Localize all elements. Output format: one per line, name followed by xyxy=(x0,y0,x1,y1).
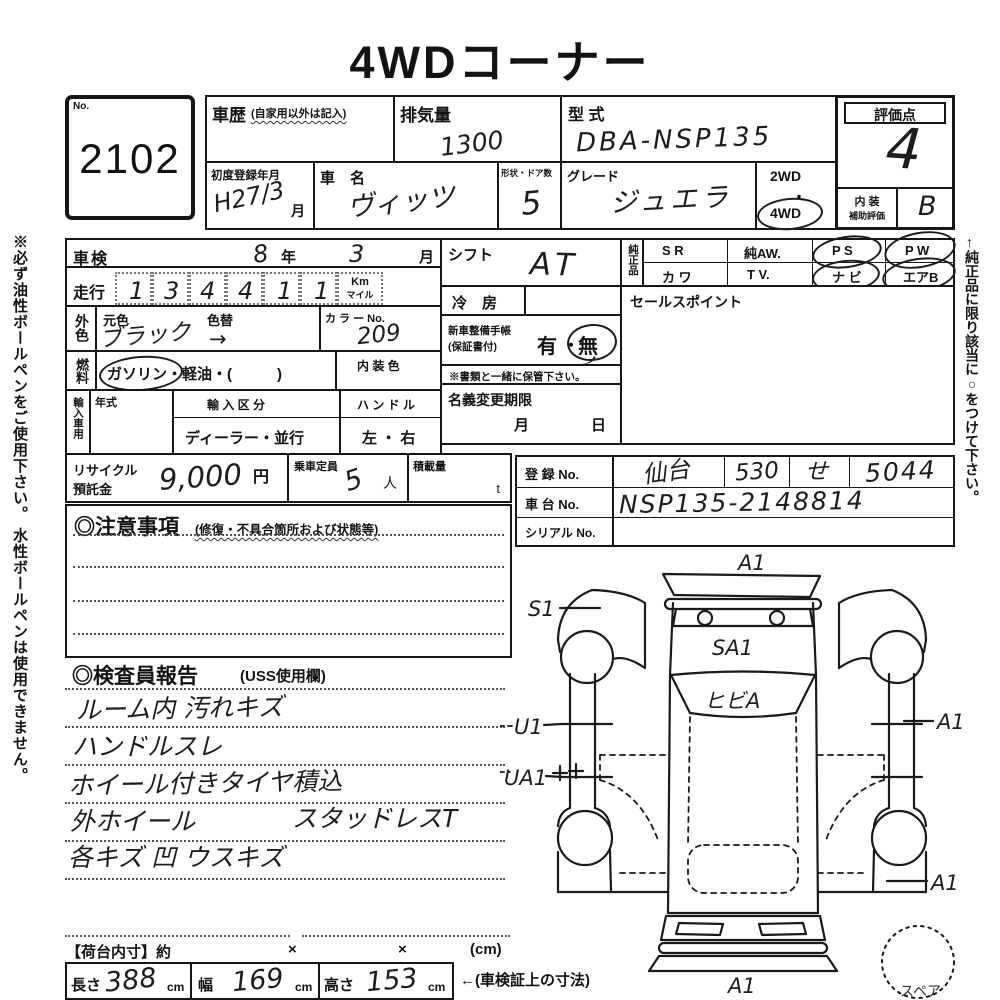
first-registration-value: H27/3 xyxy=(211,178,286,216)
interior-score-value: B xyxy=(918,193,937,220)
damage-mark-hood: SA1 xyxy=(712,636,753,660)
transfer-day: 日 xyxy=(591,414,606,435)
inspector-note: ハンドルスレ xyxy=(72,734,222,759)
car-history-label: 車歴 xyxy=(212,101,246,126)
reg-kana-value: せ xyxy=(805,461,828,484)
doors-value: 5 xyxy=(520,186,543,220)
model-code-value: DBA-NSP135 xyxy=(576,124,773,157)
left-fender xyxy=(558,590,645,668)
recycle-value: 9,000 xyxy=(158,460,243,495)
sales-point-box: セールスポイント xyxy=(620,285,955,445)
width-box: 幅 169 cm xyxy=(190,962,320,1000)
mileage-digit: 3 xyxy=(164,279,179,303)
car-name-value: ヴィッツ xyxy=(346,183,456,221)
damage-mark-top: A1 xyxy=(736,551,766,575)
load-label: 積載量 xyxy=(413,458,446,474)
length-value: 388 xyxy=(104,964,158,996)
rear-bumper-strip xyxy=(659,943,827,953)
damage-mark-fender: S1 xyxy=(528,597,555,621)
doors-box: 形状・ドア数 5 xyxy=(497,161,562,230)
capacity-unit: 人 xyxy=(383,473,397,493)
service-book-label: 新車整備手帳 (保証書付) xyxy=(448,324,511,356)
color-change-arrow: → xyxy=(209,329,227,350)
ac-label: 冷 房 xyxy=(452,292,497,313)
displacement-box: 排気量 1300 xyxy=(393,95,562,163)
front-bumper-strip xyxy=(665,599,821,609)
right-rear-wheel xyxy=(872,811,926,865)
right-front-wheel xyxy=(871,631,923,683)
first-registration-box: 初度登録年月 H27/3 月 xyxy=(205,161,315,230)
car-history-box: 車歴 (自家用以外は記入) xyxy=(205,95,395,163)
import-year-label: 年式 xyxy=(95,394,117,410)
height-value: 153 xyxy=(365,965,419,996)
import-handle-label: ハ ン ド ル xyxy=(357,396,415,413)
left-margin-note: ※必ず油性ボールペンをご使用下さい。 水性ボールペンは使用できません。 xyxy=(9,234,30,786)
shaken-month-unit: 月 xyxy=(419,246,434,267)
capacity-value: 5 xyxy=(341,465,366,496)
taillight-right xyxy=(759,923,806,935)
mileage-digit: 4 xyxy=(200,279,215,303)
mileage-digit: 1 xyxy=(314,279,329,303)
capacity-label: 乗車定員 xyxy=(294,458,338,474)
cowl-dot-right xyxy=(770,611,784,625)
body-side-right xyxy=(813,603,818,913)
reg-number-value: 5044 xyxy=(864,457,937,486)
front-bumper xyxy=(663,574,820,597)
first-registration-month: 月 xyxy=(291,201,305,221)
width-value: 169 xyxy=(231,965,285,996)
score-box: 評価点 4 内 装 補助評価 B xyxy=(835,95,955,230)
doors-label: 形状・ドア数 xyxy=(501,167,552,179)
base-color-value: ブラック xyxy=(98,321,192,352)
recycle-row: リサイクル 預託金 9,000 円 乗車定員 5 人 積載量 t xyxy=(65,453,512,503)
damage-mark-bottom: A1 xyxy=(726,974,756,998)
damage-mark-rear-door: UA1 xyxy=(504,766,547,790)
shaken-year-value: 8 xyxy=(251,241,269,267)
inspector-note: 外ホイール xyxy=(70,809,195,834)
import-handle-value: 左 ・ 右 xyxy=(362,427,415,448)
page-title: 4WDコーナー xyxy=(0,26,1000,91)
rear-bumper xyxy=(649,956,837,971)
mileage-label: 走行 xyxy=(73,279,105,303)
genuine-side-label: 純正品 xyxy=(626,244,641,276)
recycle-unit: 円 xyxy=(253,463,269,487)
mileage-unit-mile: マイル xyxy=(339,288,381,301)
import-side-label: 輸入車用 xyxy=(71,397,86,439)
shift-box: シフト AT xyxy=(440,238,622,287)
auction-sheet: 4WDコーナー ※必ず油性ボールペンをご使用下さい。 水性ボールペンは使用できま… xyxy=(0,0,1000,1000)
ac-box: 冷 房 xyxy=(440,285,622,316)
left-rear-wheel xyxy=(558,811,612,865)
serial-no-label: シリアル No. xyxy=(525,524,596,541)
car-name-label: 車 名 xyxy=(320,167,365,188)
inspector-title: ◎検査員報告 xyxy=(72,660,198,690)
genuine-aw: 純AW. xyxy=(744,243,781,262)
height-label: 高さ xyxy=(324,974,354,995)
import-box: 輸入車用 年式 輸 入 区 分 ディーラー・並行 ハ ン ド ル 左 ・ 右 xyxy=(65,389,442,456)
taillight-panel xyxy=(661,916,825,940)
displacement-label: 排気量 xyxy=(400,101,451,126)
import-division-value: ディーラー・並行 xyxy=(185,427,304,448)
genuine-tv: T V. xyxy=(747,267,770,282)
service-book-yes: 有 xyxy=(537,330,557,359)
chassis-value: NSP135-2148814 xyxy=(619,488,865,517)
import-division-label: 輸 入 区 分 xyxy=(207,396,265,413)
cargo-dim-label: 【荷台内寸】約 xyxy=(66,941,171,962)
shaken-month-value: 3 xyxy=(349,242,364,266)
genuine-kawa: カ ワ xyxy=(662,267,692,286)
fuel-side-label: 燃料 xyxy=(72,358,91,384)
spare-label: スペア xyxy=(900,983,941,999)
height-box: 高さ 153 cm xyxy=(318,962,454,1000)
interior-color-label: 内 装 色 xyxy=(357,357,400,374)
shift-value: AT xyxy=(529,249,580,282)
inspector-note: スタッドレスT xyxy=(292,806,457,831)
displacement-value: 1300 xyxy=(439,127,505,160)
lot-number-box: No. 2102 xyxy=(65,95,195,220)
damage-mark-front-door: U1 xyxy=(514,715,543,739)
inspector-subtitle: (USS使用欄) xyxy=(240,665,326,686)
keep-note: ※書類と一緒に保管下さい。 xyxy=(449,369,586,384)
color-no-value: 209 xyxy=(356,322,402,349)
transfer-month: 月 xyxy=(514,414,529,435)
width-label: 幅 xyxy=(198,974,213,995)
drive-2wd: 2WD xyxy=(770,168,801,184)
caution-title: ◎注意事項 xyxy=(74,511,179,541)
left-front-wheel xyxy=(561,631,613,683)
car-damage-diagram: A1 S1 SA1 ヒビA U1 UA1 A1 A1 A1 スペア xyxy=(500,540,970,1000)
shaken-year-unit: 年 xyxy=(281,246,296,267)
interior-score-label: 内 装 xyxy=(838,193,896,209)
model-code-label: 型 式 xyxy=(568,101,604,125)
right-margin-note: ←純正品に限り該当に○をつけて下さい。 xyxy=(962,236,982,566)
color-row: 外色 元色 色替 ブラック → カ ラ ー No. 209 xyxy=(65,305,442,353)
recycle-label: リサイクル 預託金 xyxy=(73,460,137,498)
lot-number-label: No. xyxy=(73,101,89,112)
keep-note-box: ※書類と一緒に保管下さい。 xyxy=(440,364,622,385)
color-side-label: 外色 xyxy=(72,314,92,342)
mileage-unit-km: Km xyxy=(339,276,381,288)
caution-box: ◎注意事項 (修復・不具合箇所および状態等) xyxy=(65,504,512,658)
reg-area-value: 仙台 xyxy=(641,457,692,487)
right-fender xyxy=(839,590,926,668)
interior-score-row: 内 装 補助評価 B xyxy=(838,187,952,227)
transfer-box: 名義変更期限 月 日 xyxy=(440,383,622,445)
car-name-box: 車 名 ヴィッツ xyxy=(313,161,499,230)
mileage-digit: 1 xyxy=(277,279,292,303)
cargo-dim-unit: (cm) xyxy=(470,941,502,958)
car-history-note: (自家用以外は記入) xyxy=(251,105,346,121)
damage-mark-right-side: A1 xyxy=(935,710,965,734)
grade-value: ジュエラ xyxy=(609,184,732,217)
load-unit: t xyxy=(496,481,500,496)
taillight-left xyxy=(676,923,723,935)
body-side-left xyxy=(668,603,673,913)
genuine-sr: S R xyxy=(662,243,684,258)
mileage-digit: 1 xyxy=(129,279,144,303)
inspector-note: 各キズ 凹 ウスキズ xyxy=(68,845,284,870)
mileage-unit-cell: Km マイル xyxy=(337,272,383,305)
inspector-note: ルーム内 汚れキズ xyxy=(76,694,284,723)
windshield-top xyxy=(671,672,815,676)
score-value: 4 xyxy=(884,121,923,179)
lot-number: 2102 xyxy=(69,135,191,183)
mileage-row: 走行 1 3 4 4 1 1 , Km マイル xyxy=(65,266,442,308)
registration-box: 登 録 No. 車 台 No. シリアル No. 仙台 530 せ 5044 N… xyxy=(515,455,955,547)
sales-point-label: セールスポイント xyxy=(630,292,742,312)
transfer-label: 名義変更期限 xyxy=(448,390,532,410)
damage-mark-windshield: ヒビA xyxy=(704,689,760,713)
shaken-row: 車検 8 年 3 月 xyxy=(65,238,442,269)
mileage-digit: 4 xyxy=(238,279,253,303)
length-box: 長さ 388 cm xyxy=(65,962,192,1000)
reg-no-label: 登 録 No. xyxy=(525,464,579,483)
inspector-note: ホイール付きタイヤ積込 xyxy=(68,769,343,799)
damage-mark-right-rear: A1 xyxy=(929,871,959,895)
grade-label: グレード xyxy=(567,166,619,185)
reg-class-value: 530 xyxy=(734,459,779,485)
length-label: 長さ xyxy=(71,974,101,995)
shift-label: シフト xyxy=(448,244,493,265)
model-code-box: 型 式 DBA-NSP135 xyxy=(560,95,837,163)
windshield-bottom xyxy=(690,713,796,717)
chassis-no-label: 車 台 No. xyxy=(525,494,579,513)
cowl-dot-left xyxy=(698,611,712,625)
